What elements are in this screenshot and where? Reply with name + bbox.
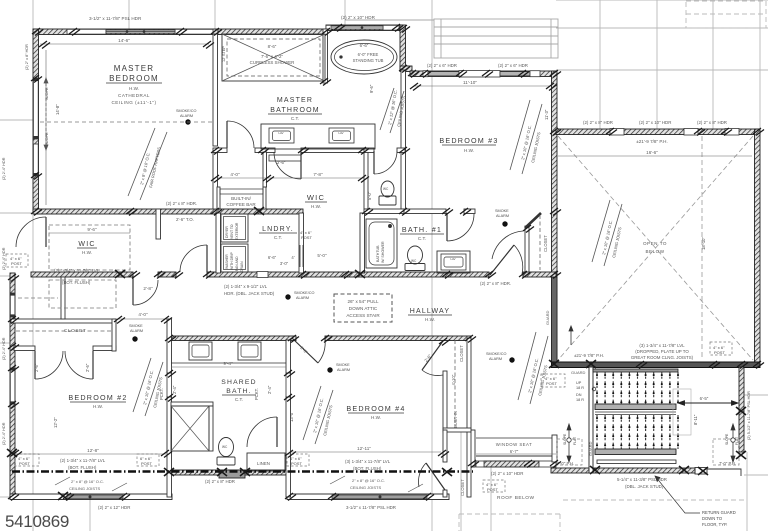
svg-text:H.W.: H.W. bbox=[82, 250, 92, 255]
svg-text:±21'-9 7/8" P.H.: ±21'-9 7/8" P.H. bbox=[636, 139, 668, 144]
svg-text:SLOPE: SLOPE bbox=[563, 433, 567, 445]
svg-text:7'-0" P.H.: 7'-0" P.H. bbox=[557, 461, 574, 466]
svg-text:12'-11": 12'-11" bbox=[357, 446, 371, 451]
svg-text:16'-6": 16'-6" bbox=[646, 150, 658, 155]
svg-text:POST: POST bbox=[291, 461, 302, 466]
svg-text:STANDING TUB: STANDING TUB bbox=[353, 58, 384, 63]
svg-text:CLOSET: CLOSET bbox=[460, 479, 465, 496]
svg-text:CEILING (±11'-1"): CEILING (±11'-1") bbox=[111, 100, 156, 105]
svg-text:(2) 2" x 8" HDR.: (2) 2" x 8" HDR. bbox=[480, 281, 511, 286]
svg-text:VENT TO: VENT TO bbox=[230, 224, 234, 239]
svg-text:2'-6": 2'-6" bbox=[34, 363, 39, 372]
svg-text:GUARD: GUARD bbox=[588, 441, 593, 456]
svg-text:5410869: 5410869 bbox=[5, 512, 69, 531]
svg-text:(2) 1-3/4" x 11-7/8" LVL: (2) 1-3/4" x 11-7/8" LVL bbox=[60, 458, 106, 463]
svg-text:ALARM: ALARM bbox=[296, 296, 309, 300]
svg-text:BELOW: BELOW bbox=[645, 249, 664, 254]
svg-text:H.W.: H.W. bbox=[93, 404, 103, 409]
svg-text:(2) 2" x 8" HDR: (2) 2" x 8" HDR bbox=[583, 120, 613, 125]
svg-text:6'-6": 6'-6" bbox=[360, 43, 369, 48]
svg-text:C.T.: C.T. bbox=[291, 116, 299, 121]
svg-text:(2) 1-3/4" x 11-7/8" LVL: (2) 1-3/4" x 11-7/8" LVL bbox=[54, 268, 100, 273]
svg-text:CLOSET: CLOSET bbox=[64, 328, 86, 334]
svg-text:BATH. #1: BATH. #1 bbox=[402, 225, 442, 234]
svg-text:SHARED: SHARED bbox=[221, 379, 257, 386]
svg-text:13'-0": 13'-0" bbox=[289, 411, 294, 422]
svg-text:BUILT-IN: BUILT-IN bbox=[453, 411, 458, 428]
svg-text:18 R: 18 R bbox=[576, 398, 584, 402]
svg-text:PCKT.: PCKT. bbox=[159, 388, 164, 400]
svg-text:ALARM: ALARM bbox=[130, 329, 143, 333]
svg-text:4'-0": 4'-0" bbox=[230, 172, 240, 177]
svg-text:3-1/2" x 11-7/8" PSL HDR: 3-1/2" x 11-7/8" PSL HDR bbox=[89, 16, 142, 21]
svg-text:BUILT-IN/: BUILT-IN/ bbox=[231, 196, 252, 201]
svg-text:WIC: WIC bbox=[78, 241, 95, 248]
svg-text:9'-6": 9'-6" bbox=[369, 84, 374, 93]
svg-text:W/ SHOWER: W/ SHOWER bbox=[381, 241, 385, 263]
svg-text:DRYER: DRYER bbox=[225, 226, 229, 238]
svg-text:(BOT. FLUSH): (BOT. FLUSH) bbox=[353, 466, 382, 471]
svg-text:2" x 8" @ 16" O.C.: 2" x 8" @ 16" O.C. bbox=[71, 479, 104, 484]
svg-text:SMOKE/CO: SMOKE/CO bbox=[294, 291, 315, 295]
svg-text:3-1/2" x 11-7/8" PSL HDR: 3-1/2" x 11-7/8" PSL HDR bbox=[346, 505, 396, 510]
svg-text:11'-10": 11'-10" bbox=[463, 80, 477, 85]
svg-text:POST: POST bbox=[714, 350, 725, 355]
svg-text:BEDROOM #2: BEDROOM #2 bbox=[68, 393, 127, 402]
svg-text:6'-7": 6'-7" bbox=[510, 449, 519, 454]
svg-text:C.T.: C.T. bbox=[274, 235, 282, 240]
svg-text:SMOKE: SMOKE bbox=[336, 363, 350, 367]
svg-text:6'-5": 6'-5" bbox=[700, 396, 709, 401]
svg-text:HALLWAY: HALLWAY bbox=[410, 308, 451, 315]
svg-text:(2) 2" x 12" HDR: (2) 2" x 12" HDR bbox=[98, 505, 130, 510]
svg-text:ALARM: ALARM bbox=[496, 214, 509, 218]
svg-text:9'-4": 9'-4" bbox=[223, 361, 233, 366]
svg-text:±21'-9 7/8" P.H.: ±21'-9 7/8" P.H. bbox=[574, 353, 604, 358]
svg-text:DRAIN: DRAIN bbox=[240, 261, 244, 272]
svg-text:DOWN ATTIC: DOWN ATTIC bbox=[349, 306, 378, 311]
svg-text:12'-8": 12'-8" bbox=[87, 448, 99, 453]
svg-text:BATHTUB: BATHTUB bbox=[376, 245, 380, 262]
svg-text:WC: WC bbox=[411, 259, 417, 263]
svg-text:FLAT: FLAT bbox=[573, 437, 577, 445]
svg-text:7'-8": 7'-8" bbox=[313, 172, 323, 177]
svg-text:6'-6": 6'-6" bbox=[268, 255, 277, 260]
svg-text:11'-3": 11'-3" bbox=[544, 109, 549, 120]
svg-text:12' STEP: 12' STEP bbox=[222, 46, 226, 62]
svg-text:2'-4": 2'-4" bbox=[172, 385, 177, 394]
svg-text:5-1/4" x 11-3/8" PSL HDR: 5-1/4" x 11-3/8" PSL HDR bbox=[617, 477, 667, 482]
svg-text:EXTERIOR: EXTERIOR bbox=[235, 222, 239, 240]
svg-text:WITH DRIP: WITH DRIP bbox=[230, 252, 234, 270]
svg-text:H.W.: H.W. bbox=[311, 204, 321, 209]
svg-text:ACCESS STAIR: ACCESS STAIR bbox=[346, 313, 380, 318]
svg-text:9'-6": 9'-6" bbox=[87, 227, 97, 232]
svg-text:H.W.: H.W. bbox=[129, 86, 139, 91]
svg-text:WASHER: WASHER bbox=[225, 254, 229, 269]
svg-text:(3) 1-3/4" x 11-7/8" LVL: (3) 1-3/4" x 11-7/8" LVL bbox=[639, 343, 685, 348]
svg-text:CLOSET: CLOSET bbox=[543, 235, 548, 252]
svg-text:(2) 2" x 8" HDR: (2) 2" x 8" HDR bbox=[697, 120, 727, 125]
svg-text:14'-6": 14'-6" bbox=[118, 38, 130, 43]
svg-text:POST: POST bbox=[19, 461, 30, 466]
svg-text:FLAT: FLAT bbox=[735, 437, 739, 445]
svg-text:WC: WC bbox=[383, 187, 389, 191]
svg-text:(2) 2" x 6" HDR: (2) 2" x 6" HDR bbox=[498, 63, 528, 68]
svg-text:SLOPE: SLOPE bbox=[45, 132, 49, 145]
svg-text:H.W.: H.W. bbox=[371, 415, 381, 420]
svg-text:MASTER: MASTER bbox=[114, 64, 155, 73]
svg-text:SMOKE/CO: SMOKE/CO bbox=[486, 352, 507, 356]
svg-text:RETURN GUARD: RETURN GUARD bbox=[702, 510, 736, 515]
svg-text:CURBLESS SHOWER: CURBLESS SHOWER bbox=[250, 60, 295, 65]
svg-text:(2) 2" x 10" HDR: (2) 2" x 10" HDR bbox=[639, 120, 671, 125]
svg-text:SLOPE: SLOPE bbox=[45, 87, 49, 100]
svg-text:CLOSET: CLOSET bbox=[459, 345, 464, 362]
svg-text:(DROPPED, PLATE UP TO: (DROPPED, PLATE UP TO bbox=[635, 349, 689, 354]
svg-text:(2) 2" x 8" HDR: (2) 2" x 8" HDR bbox=[205, 479, 235, 484]
svg-text:SMOKE: SMOKE bbox=[495, 209, 509, 213]
svg-text:LAV: LAV bbox=[338, 131, 343, 135]
svg-text:WIC: WIC bbox=[307, 193, 325, 202]
svg-text:H.W.: H.W. bbox=[464, 148, 474, 153]
svg-text:(2) 2" x 10" HDR: (2) 2" x 10" HDR bbox=[491, 471, 523, 476]
svg-text:PCKT.: PCKT. bbox=[254, 388, 259, 400]
svg-text:CATHEDRAL: CATHEDRAL bbox=[118, 93, 150, 98]
svg-text:MASTER: MASTER bbox=[277, 97, 313, 104]
svg-text:4'-0": 4'-0" bbox=[138, 312, 148, 317]
svg-text:6'-0" FREE: 6'-0" FREE bbox=[358, 52, 379, 57]
svg-text:(3) 1-3/4" x 11-7/8" LVL: (3) 1-3/4" x 11-7/8" LVL bbox=[345, 459, 391, 464]
svg-text:(2) 2'-4" HDR: (2) 2'-4" HDR bbox=[2, 422, 6, 445]
svg-text:GUARD: GUARD bbox=[545, 310, 550, 325]
svg-text:(BOT. FLUSH): (BOT. FLUSH) bbox=[62, 280, 91, 285]
svg-text:WC: WC bbox=[222, 445, 228, 449]
svg-text:5'-0": 5'-0" bbox=[367, 191, 372, 200]
svg-text:HDR. (DBL. JACK STUD): HDR. (DBL. JACK STUD) bbox=[224, 291, 275, 296]
svg-text:12'-2": 12'-2" bbox=[53, 417, 58, 428]
svg-text:C.T.: C.T. bbox=[418, 236, 426, 241]
svg-text:PAN AND: PAN AND bbox=[235, 256, 239, 271]
svg-text:(2) 1-3/4" x 9-1/2" LVL: (2) 1-3/4" x 9-1/2" LVL bbox=[224, 284, 268, 289]
svg-text:DN: DN bbox=[576, 393, 582, 397]
svg-text:(DBL. JACK STUD): (DBL. JACK STUD) bbox=[625, 484, 664, 489]
svg-text:LAV: LAV bbox=[450, 257, 455, 261]
svg-text:ROOF BELOW: ROOF BELOW bbox=[497, 495, 535, 501]
svg-text:SMOKE: SMOKE bbox=[129, 324, 143, 328]
svg-text:(2) 2" x 6" HDR: (2) 2" x 6" HDR bbox=[427, 63, 457, 68]
svg-text:BATHROOM: BATHROOM bbox=[270, 107, 320, 114]
svg-text:COFFEE BAR: COFFEE BAR bbox=[226, 202, 256, 207]
svg-text:(2) 2'-4" HDR: (2) 2'-4" HDR bbox=[2, 337, 6, 360]
svg-text:26" x 54" PULL: 26" x 54" PULL bbox=[347, 299, 379, 304]
svg-text:(2) 2" x 10" HDR: (2) 2" x 10" HDR bbox=[341, 15, 376, 20]
svg-text:BATH.: BATH. bbox=[226, 388, 252, 395]
svg-text:(2) 2" x 8" HDR.: (2) 2" x 8" HDR. bbox=[166, 201, 197, 206]
svg-text:OPEN TO: OPEN TO bbox=[643, 241, 667, 246]
svg-text:BEDROOM #4: BEDROOM #4 bbox=[346, 404, 405, 413]
svg-text:POST: POST bbox=[487, 487, 498, 492]
svg-text:GUARD: GUARD bbox=[571, 370, 586, 375]
svg-text:DOWN TO: DOWN TO bbox=[702, 516, 723, 521]
svg-text:7'-6" x 4'-2": 7'-6" x 4'-2" bbox=[261, 54, 284, 59]
svg-text:ALARM: ALARM bbox=[180, 114, 193, 118]
svg-text:3'-0": 3'-0" bbox=[280, 261, 289, 266]
svg-text:LINEN: LINEN bbox=[257, 461, 270, 466]
svg-text:SMOKE/CO: SMOKE/CO bbox=[176, 109, 197, 113]
svg-text:2'-6" T.O.: 2'-6" T.O. bbox=[176, 217, 194, 222]
svg-text:2'-4": 2'-4" bbox=[267, 385, 272, 394]
svg-text:FLOOR, TYP.: FLOOR, TYP. bbox=[702, 522, 727, 527]
svg-text:POST: POST bbox=[141, 461, 152, 466]
svg-text:LAV: LAV bbox=[278, 131, 283, 135]
svg-text:CEILING JOISTS: CEILING JOISTS bbox=[350, 485, 381, 490]
svg-text:(BOT. FLUSH): (BOT. FLUSH) bbox=[68, 465, 97, 470]
svg-text:7'-0" P.H.: 7'-0" P.H. bbox=[719, 461, 736, 466]
svg-text:5'-0": 5'-0" bbox=[317, 253, 327, 258]
svg-text:ALARM: ALARM bbox=[337, 368, 350, 372]
svg-text:18 R: 18 R bbox=[576, 386, 584, 390]
svg-text:WINDOW SEAT: WINDOW SEAT bbox=[496, 442, 532, 447]
svg-text:GREAT ROOM CLNG. JOISTS): GREAT ROOM CLNG. JOISTS) bbox=[631, 355, 694, 360]
svg-text:LNDRY.: LNDRY. bbox=[262, 226, 294, 233]
svg-text:CEILING JOISTS: CEILING JOISTS bbox=[69, 486, 100, 491]
svg-text:BEDROOM: BEDROOM bbox=[109, 74, 159, 83]
svg-text:POST: POST bbox=[546, 381, 557, 386]
svg-text:4': 4' bbox=[291, 255, 294, 260]
svg-text:POST: POST bbox=[11, 261, 22, 266]
svg-text:H.W.: H.W. bbox=[425, 317, 435, 322]
svg-text:8'-6": 8'-6" bbox=[268, 44, 277, 49]
svg-text:4'-10": 4'-10" bbox=[451, 374, 456, 385]
svg-text:ALARM: ALARM bbox=[489, 357, 502, 361]
svg-text:(2) 2'-4" HDR: (2) 2'-4" HDR bbox=[2, 247, 6, 270]
svg-text:2'-6": 2'-6" bbox=[85, 363, 90, 372]
svg-text:POST: POST bbox=[301, 235, 312, 240]
svg-text:2'-6": 2'-6" bbox=[277, 160, 286, 165]
svg-text:(2) 2'-4" HDR: (2) 2'-4" HDR bbox=[2, 157, 6, 180]
svg-text:SLOPE: SLOPE bbox=[725, 433, 729, 445]
svg-text:UP: UP bbox=[576, 381, 582, 385]
svg-text:18'-10": 18'-10" bbox=[701, 236, 706, 250]
svg-text:C.T.: C.T. bbox=[235, 397, 243, 402]
svg-text:8'-11": 8'-11" bbox=[693, 414, 698, 425]
svg-text:2" x 8" @ 16" O.C.: 2" x 8" @ 16" O.C. bbox=[352, 478, 385, 483]
svg-text:BEDROOM #3: BEDROOM #3 bbox=[439, 136, 498, 145]
svg-text:14'-8": 14'-8" bbox=[55, 104, 60, 115]
svg-text:(2) 5-1/2" x 11-7/8" PSL HDR: (2) 5-1/2" x 11-7/8" PSL HDR bbox=[747, 391, 751, 440]
svg-text:2'-8": 2'-8" bbox=[143, 286, 153, 291]
svg-text:(2) 2" x 8" HDR: (2) 2" x 8" HDR bbox=[25, 44, 29, 70]
